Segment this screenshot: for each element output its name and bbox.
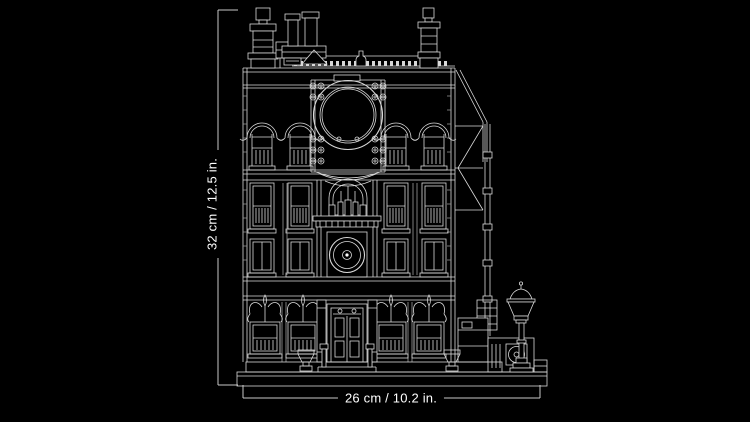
height-dimension-line bbox=[218, 10, 238, 385]
window-bay bbox=[420, 183, 448, 277]
width-dimension-label: 26 cm / 10.2 in. bbox=[338, 392, 444, 405]
height-dimension-label: 32 cm / 12.5 in. bbox=[206, 151, 219, 257]
right-chimney bbox=[418, 8, 440, 68]
product-dimension-image: 32 cm / 12.5 in. 26 cm / 10.2 in. bbox=[0, 0, 750, 422]
planter-urn bbox=[298, 350, 314, 371]
ground-window bbox=[374, 295, 409, 358]
building-facade bbox=[237, 8, 547, 386]
window-bay bbox=[382, 183, 410, 277]
ground-window bbox=[286, 295, 321, 358]
ground-window bbox=[412, 295, 447, 358]
building-line-art bbox=[0, 0, 750, 422]
roof-finial bbox=[356, 51, 366, 66]
round-window bbox=[310, 75, 386, 186]
side-annex bbox=[455, 70, 547, 372]
middle-chimneys bbox=[282, 12, 327, 65]
ground-window bbox=[248, 295, 283, 358]
window-bay bbox=[248, 183, 276, 277]
window-bay bbox=[286, 183, 314, 277]
arched-window bbox=[412, 123, 456, 170]
balcony-section bbox=[313, 179, 381, 277]
